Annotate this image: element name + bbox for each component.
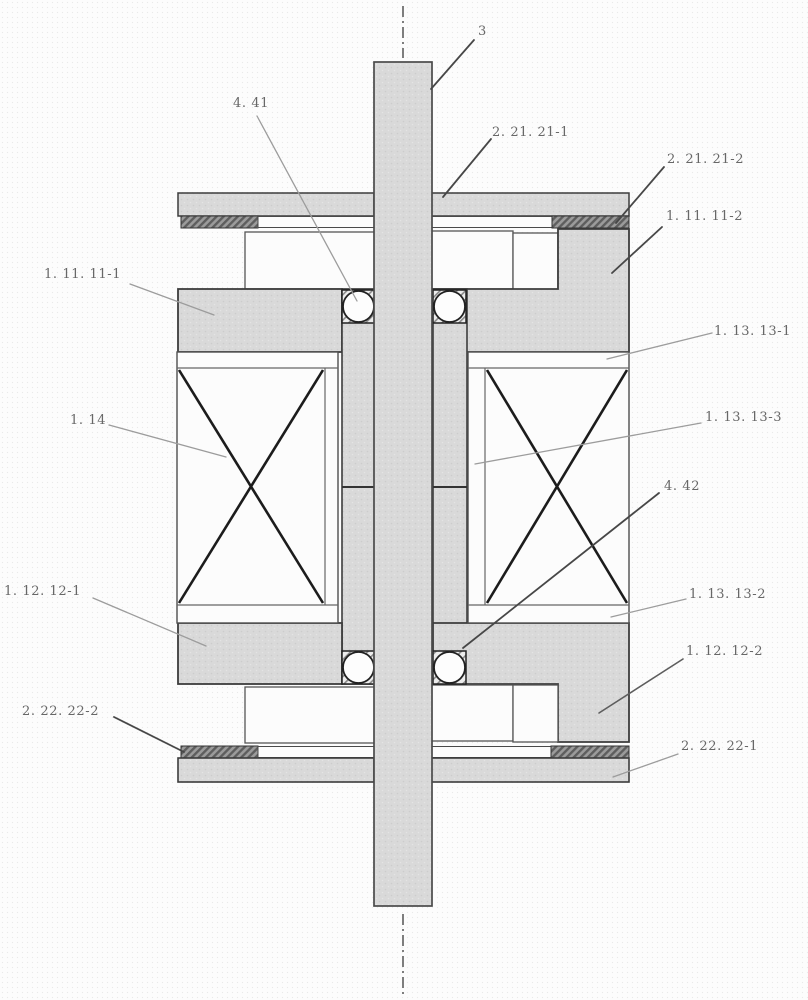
- top-spacer-left: [245, 232, 375, 289]
- coil-right: [468, 352, 629, 623]
- label-block-11-1: 1. 11. 11-1: [44, 268, 121, 281]
- label-ring-21-1: 2. 21. 21-1: [492, 126, 569, 139]
- top-spacer-right-a: [431, 231, 513, 289]
- label-strip-13-3: 1. 13. 13-3: [705, 411, 782, 424]
- bottom-thin-strip-right: [430, 747, 551, 758]
- bearing-ball-bottom-left: [343, 652, 374, 683]
- label-ring-22-1: 2. 22. 22-1: [681, 740, 758, 753]
- leader-ring-21-1: [443, 139, 491, 197]
- bottom-spacer-left: [245, 687, 375, 743]
- top-thin-strip-right: [430, 217, 552, 228]
- shaft: [374, 62, 432, 906]
- label-block-12-1: 1. 12. 12-1: [4, 585, 81, 598]
- bottom-spacer-right-a: [431, 685, 513, 741]
- coil-left-frame: [177, 352, 338, 623]
- label-block-11-2: 1. 11. 11-2: [666, 210, 743, 223]
- label-ball-41: 4. 41: [233, 97, 269, 110]
- top-plate-right: [430, 193, 629, 216]
- leader-shaft: [431, 40, 474, 89]
- label-ball-42: 4. 42: [664, 480, 700, 493]
- label-ring-21-2: 2. 21. 21-2: [667, 153, 744, 166]
- bottom-dark-strip-left: [181, 746, 258, 758]
- label-coil-14: 1. 14: [70, 414, 106, 427]
- label-block-12-2: 1. 12. 12-2: [686, 645, 763, 658]
- bottom-plate-left: [178, 758, 374, 782]
- bottom-thin-strip-left: [258, 747, 374, 758]
- bearing-ball-top-left: [343, 291, 374, 322]
- top-dark-strip-left: [181, 216, 258, 228]
- block-11-1: [178, 289, 342, 352]
- label-shaft: 3: [478, 25, 487, 38]
- leader-ring-22-2: [114, 717, 184, 752]
- bearing-ball-bottom-right: [434, 652, 465, 683]
- figure-canvas: 3 2. 21. 21-1 2. 21. 21-2 1. 11. 11-2 1.…: [0, 0, 808, 1000]
- bottom-spacer-right-b: [513, 685, 558, 742]
- coil-left: [177, 352, 338, 623]
- diagram-svg: [0, 0, 808, 1000]
- bottom-plate-right: [430, 758, 629, 782]
- label-ring-22-2: 2. 22. 22-2: [22, 705, 99, 718]
- label-bar-13-2: 1. 13. 13-2: [689, 588, 766, 601]
- label-bar-13-1: 1. 13. 13-1: [714, 325, 791, 338]
- top-spacer-right-b: [513, 233, 558, 290]
- bottom-dark-strip-right: [551, 746, 629, 758]
- bearing-ball-top-right: [434, 291, 465, 322]
- block-12-1: [178, 623, 342, 684]
- coil-right-frame: [468, 352, 629, 623]
- top-plate-left: [178, 193, 374, 216]
